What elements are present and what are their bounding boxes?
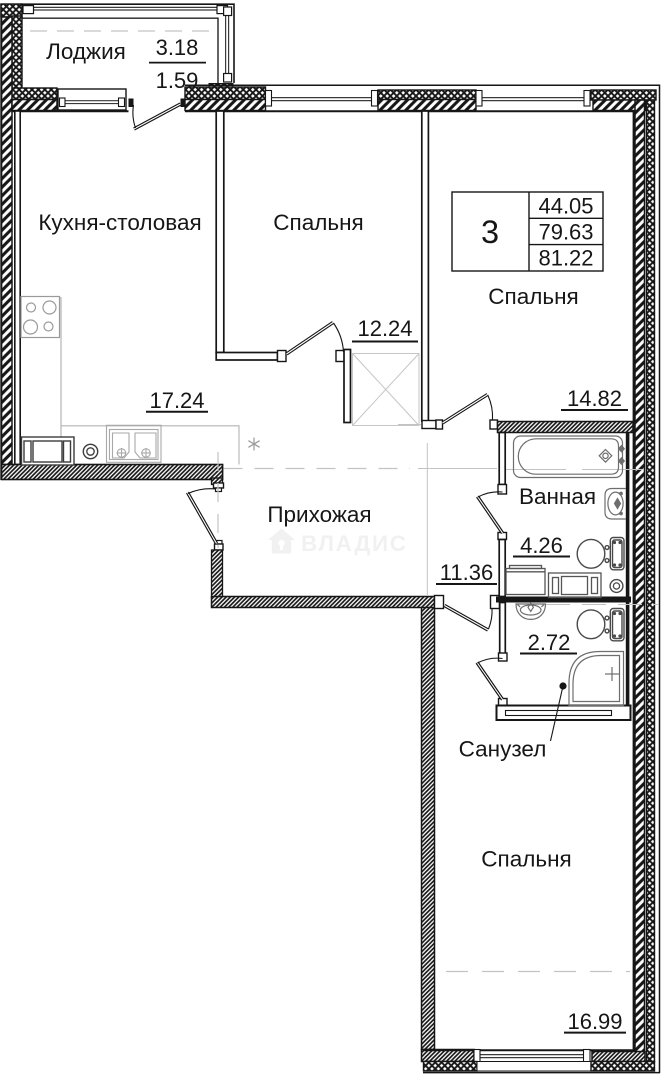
svg-text:Кухня-столовая: Кухня-столовая xyxy=(38,210,201,235)
svg-text:Спальня: Спальня xyxy=(488,284,578,309)
svg-text:Спальня: Спальня xyxy=(273,210,363,235)
svg-text:14.82: 14.82 xyxy=(567,386,622,411)
svg-text:3: 3 xyxy=(481,214,499,250)
svg-text:3.18: 3.18 xyxy=(156,35,199,60)
svg-text:4.26: 4.26 xyxy=(520,533,563,558)
svg-text:Прихожая: Прихожая xyxy=(267,502,371,527)
svg-text:Лоджия: Лоджия xyxy=(46,39,126,64)
svg-text:Санузел: Санузел xyxy=(459,737,547,762)
svg-text:79.63: 79.63 xyxy=(538,220,593,245)
svg-text:Ванная: Ванная xyxy=(519,484,596,509)
svg-text:16.99: 16.99 xyxy=(567,1009,622,1034)
svg-text:12.24: 12.24 xyxy=(357,316,412,341)
svg-text:11.36: 11.36 xyxy=(440,560,493,585)
svg-text:2.72: 2.72 xyxy=(528,630,571,655)
svg-text:44.05: 44.05 xyxy=(538,194,593,219)
svg-text:ВЛАДИС: ВЛАДИС xyxy=(301,531,408,556)
svg-text:81.22: 81.22 xyxy=(538,246,593,271)
svg-text:17.24: 17.24 xyxy=(149,388,204,413)
svg-text:Спальня: Спальня xyxy=(481,847,571,872)
